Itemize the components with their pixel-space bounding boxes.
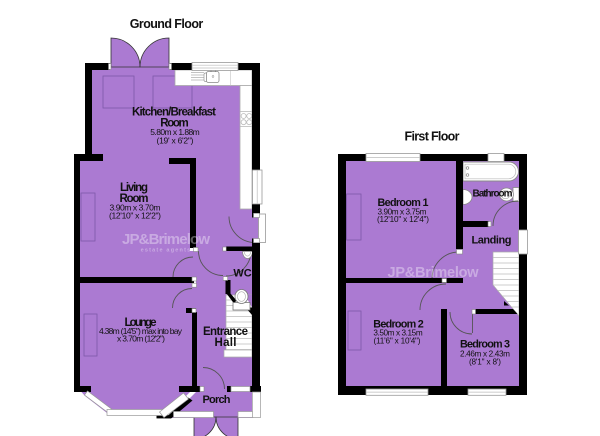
svg-text:(19' x 6'2"): (19' x 6'2") — [157, 136, 194, 146]
svg-text:Porch: Porch — [203, 394, 231, 406]
svg-text:(12'10" x 12'4"): (12'10" x 12'4") — [377, 215, 429, 224]
svg-text:Ground Floor: Ground Floor — [130, 17, 204, 31]
svg-text:x 3.70m (12'2"): x 3.70m (12'2") — [117, 334, 165, 344]
svg-text:JP&Brimelow: JP&Brimelow — [122, 231, 210, 248]
svg-text:(8'1" x 8'): (8'1" x 8') — [469, 358, 501, 367]
svg-text:First Floor: First Floor — [405, 130, 460, 144]
svg-text:(12'10" x 12'2"): (12'10" x 12'2") — [109, 211, 161, 221]
svg-text:Landing: Landing — [472, 235, 512, 247]
svg-text:WC: WC — [233, 268, 251, 280]
svg-text:Hall: Hall — [215, 337, 237, 349]
svg-text:JP&Brimelow: JP&Brimelow — [388, 265, 480, 281]
svg-text:Bathroom: Bathroom — [473, 189, 513, 200]
svg-text:estate agents: estate agents — [141, 248, 192, 254]
svg-text:(11'6" x 10'4"): (11'6" x 10'4") — [374, 337, 421, 346]
